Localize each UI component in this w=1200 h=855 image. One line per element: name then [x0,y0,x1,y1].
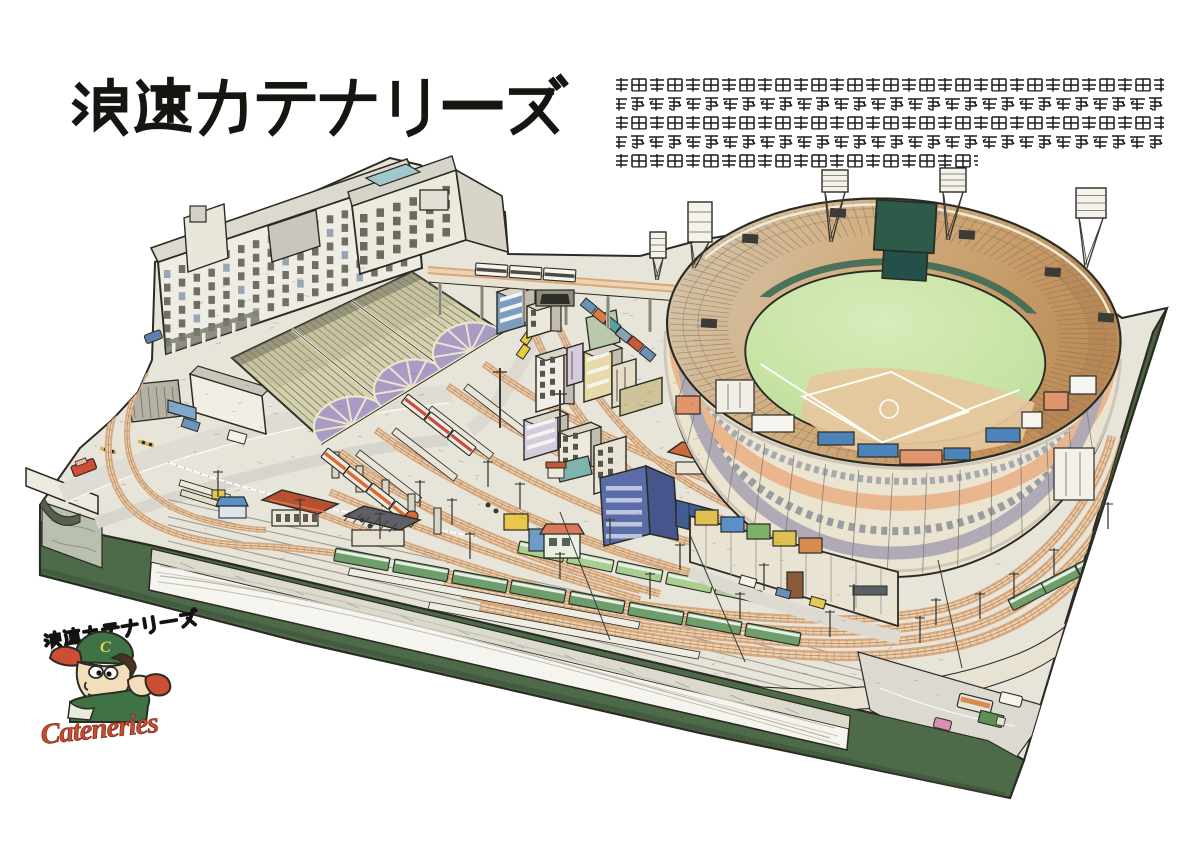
svg-text:C: C [100,639,111,656]
